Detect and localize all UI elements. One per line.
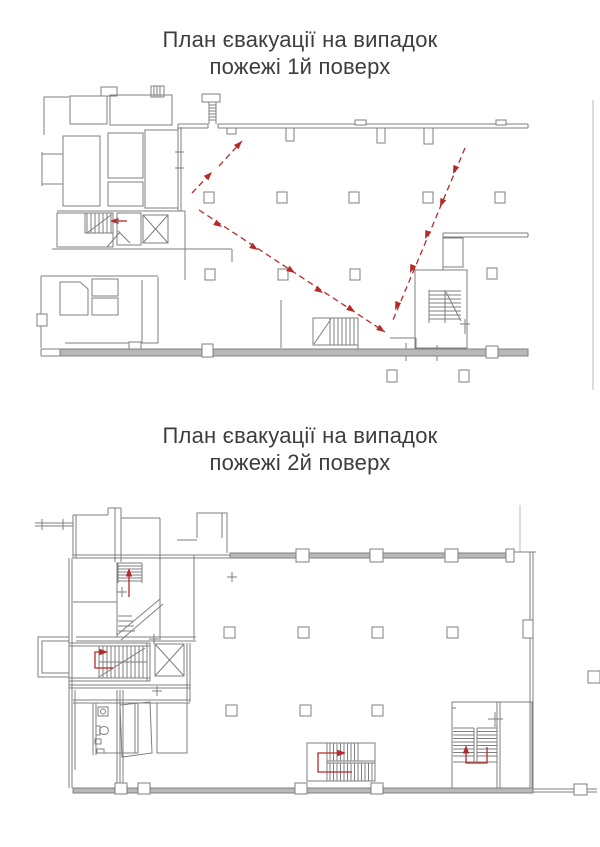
toilet-icon [95, 726, 109, 753]
floor2-column-markers [224, 627, 600, 716]
floor1-staircase-right-icon [415, 233, 528, 348]
exterior-stair-icon [202, 94, 220, 124]
floor1-title-line1: План євакуації на випадок [0, 26, 600, 53]
floor1-plan [0, 80, 600, 400]
floor2-bottom-wall [73, 783, 597, 795]
evacuation-path-right-stair [463, 745, 487, 763]
floor2-left-wall [38, 558, 75, 788]
evacuation-poster: План євакуації на випадок пожежі 1й пове… [0, 0, 600, 847]
floor2-elevator-icon [155, 644, 184, 676]
room-box [120, 702, 152, 757]
floor2-rooms-topleft [73, 555, 237, 644]
floor2-staircase-middle-icon [307, 743, 375, 781]
ramp-icon [117, 599, 163, 640]
floor2-bathroom [93, 702, 187, 757]
floor2-title-line1: План євакуації на випадок [0, 422, 600, 449]
floor1-hall-top-wall [178, 94, 528, 144]
floor2-plan [0, 498, 600, 828]
floor1-title: План євакуації на випадок пожежі 1й пове… [0, 26, 600, 80]
section-cross [488, 712, 503, 727]
evacuation-path-main-stair [95, 649, 113, 668]
floor1-staircase-center-icon [313, 318, 358, 345]
sink-icon [98, 707, 108, 716]
floor1-title-line2: пожежі 1й поверх [0, 53, 600, 80]
section-cross [117, 572, 237, 644]
floor2-top-wall [73, 549, 536, 562]
floor2-title-line2: пожежі 2й поверх [0, 449, 600, 476]
floor1-staircase-topleft-icon [57, 213, 120, 247]
door-swing [118, 231, 130, 243]
balcony [38, 637, 69, 677]
floor2-staircase-main-icon [69, 643, 150, 681]
floor2-staircase-right-icon [452, 702, 532, 788]
evacuation-arrows-floor1 [192, 139, 465, 335]
room-box [157, 703, 187, 753]
floor1-elevator-icon [143, 215, 168, 243]
floor1-rooms-topleft [42, 86, 185, 211]
floor1-bottom-wall [41, 344, 528, 358]
room-box [117, 213, 141, 245]
floor2-corridor [69, 643, 190, 783]
floor2-title: План євакуації на випадок пожежі 2й пове… [0, 422, 600, 476]
